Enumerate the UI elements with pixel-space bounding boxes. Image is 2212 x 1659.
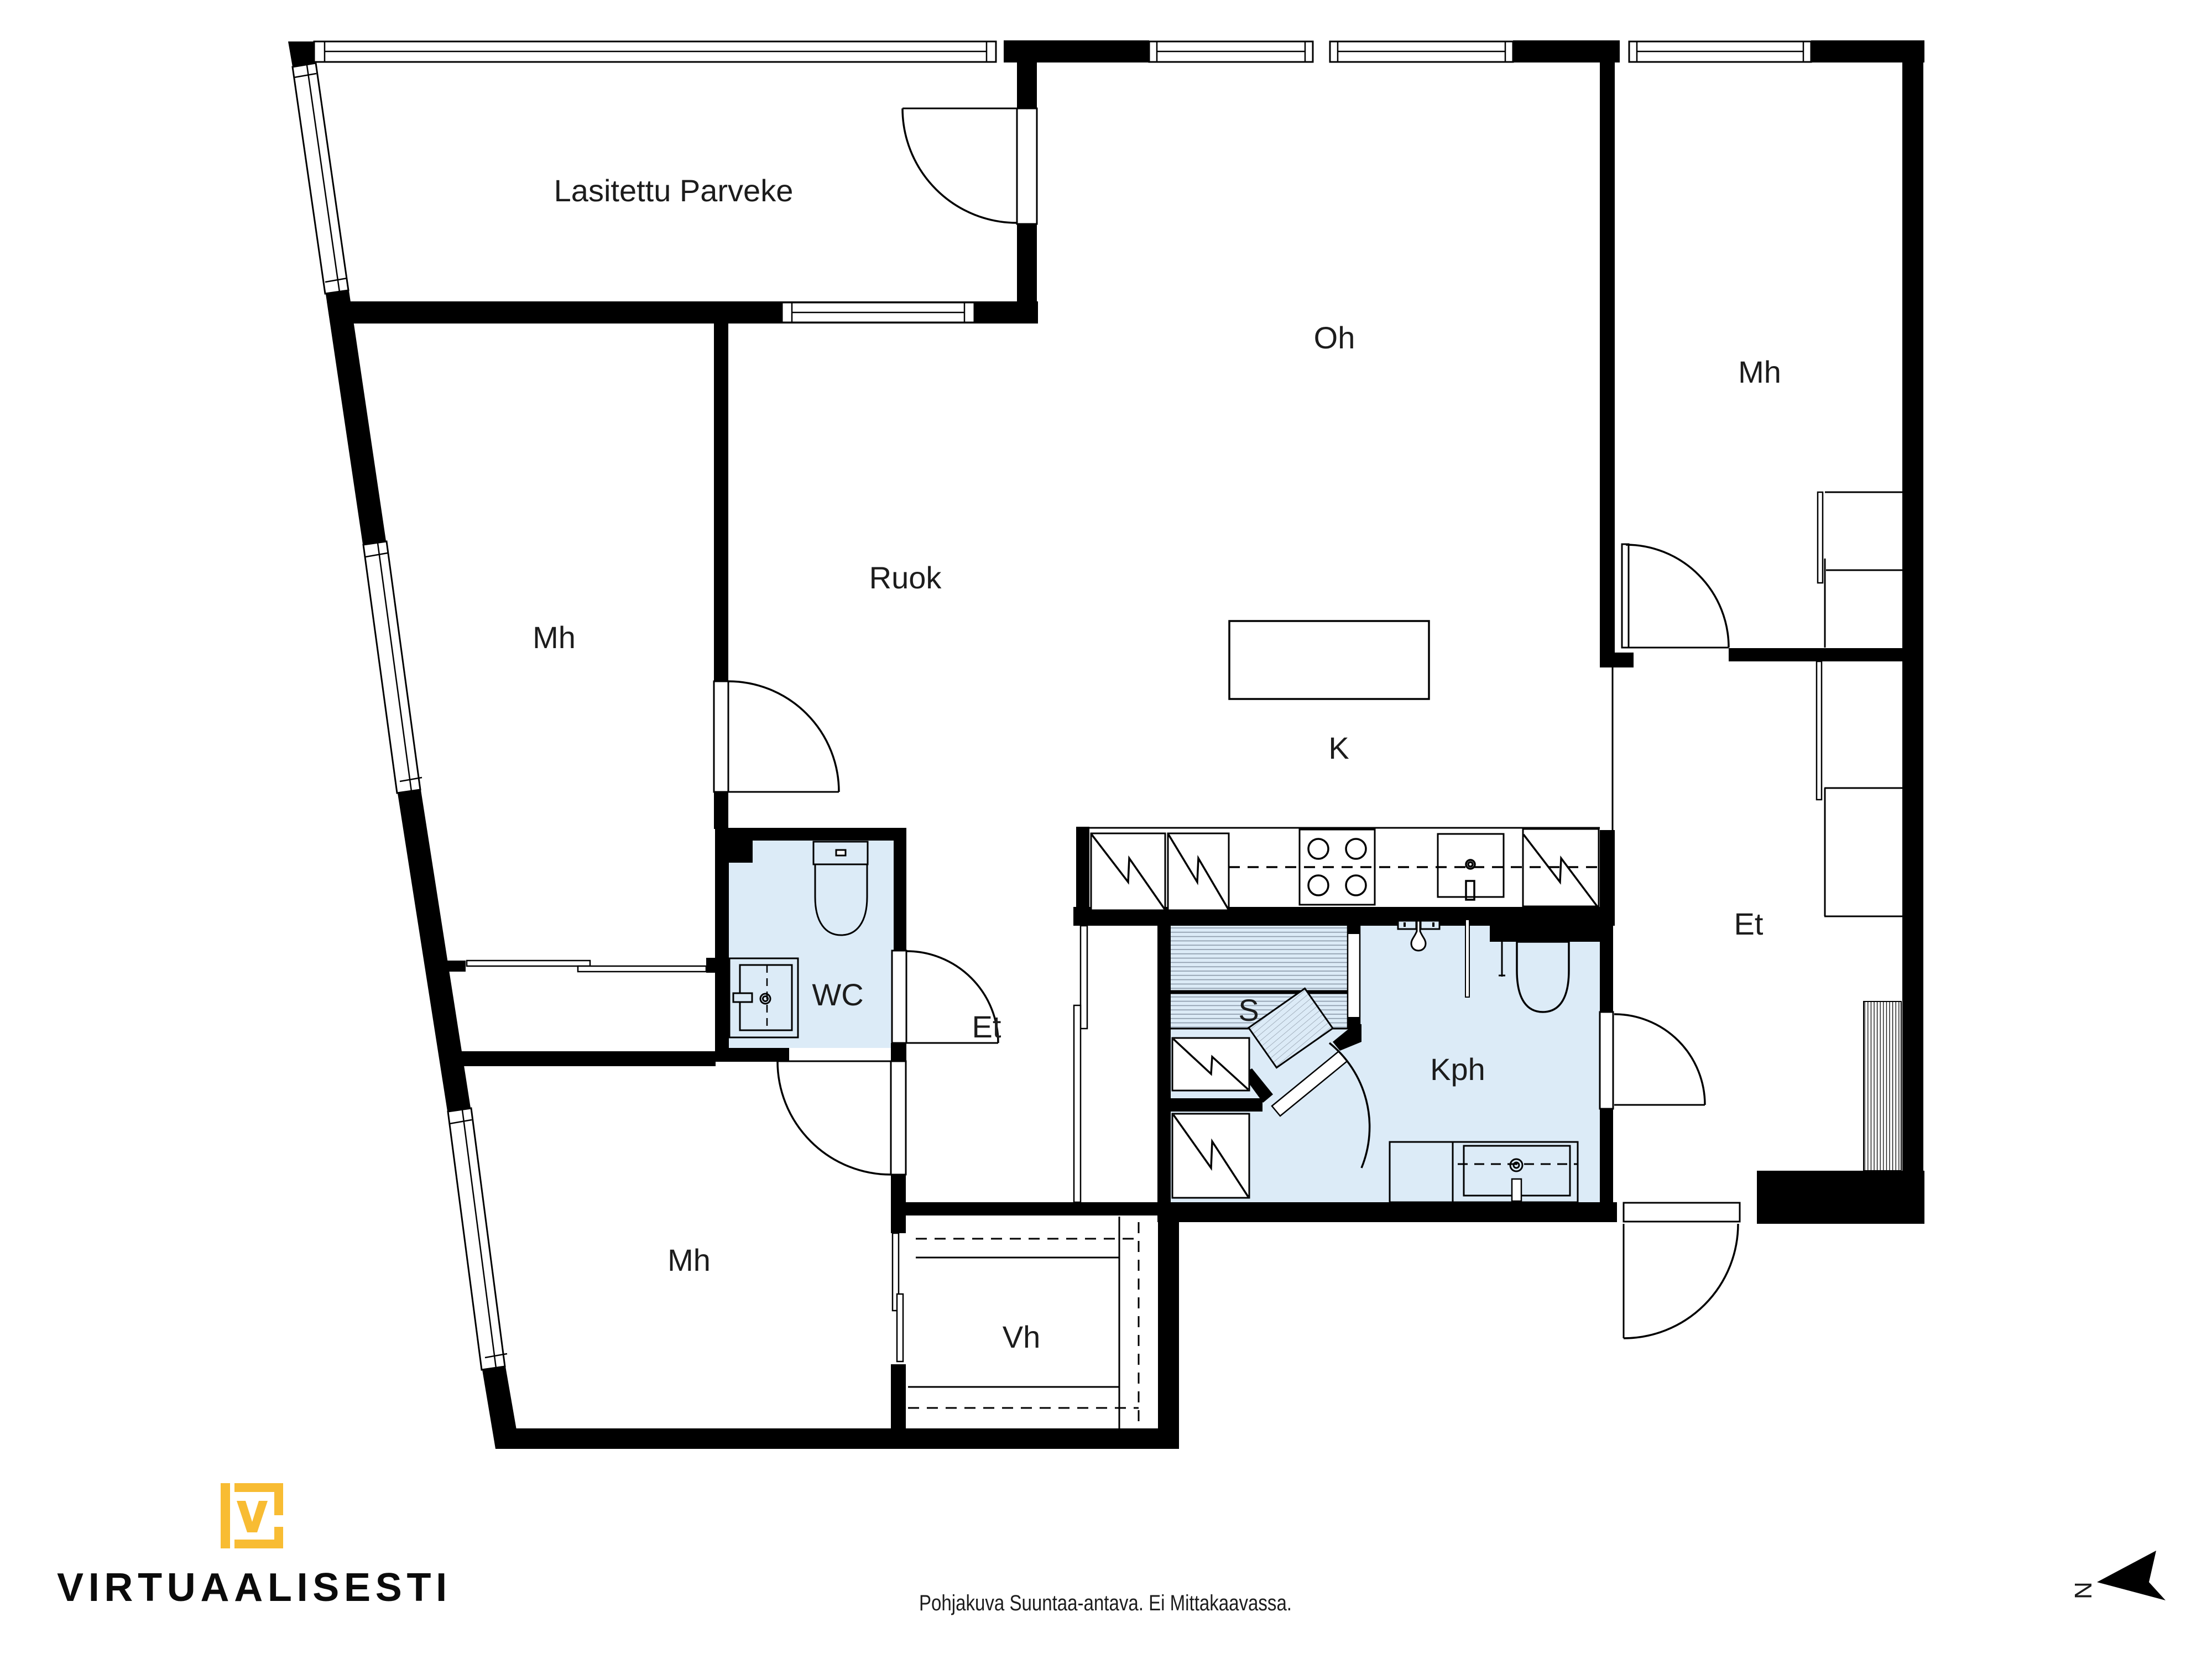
svg-text:Pohjakuva Suuntaa-antava. Ei M: Pohjakuva Suuntaa-antava. Ei Mittakaavas… [919,1591,1292,1615]
svg-text:VIRTUAALISESTI: VIRTUAALISESTI [57,1566,452,1610]
svg-text:Mh: Mh [667,1243,711,1277]
svg-text:S: S [1238,993,1259,1027]
svg-text:Ruok: Ruok [869,560,942,595]
svg-text:Mh: Mh [1738,354,1781,389]
svg-text:Lasitettu Parveke: Lasitettu Parveke [554,173,794,208]
svg-text:Oh: Oh [1314,320,1355,355]
svg-text:Kph: Kph [1430,1052,1485,1087]
svg-text:K: K [1328,731,1349,765]
svg-text:N: N [2069,1582,2096,1599]
svg-text:Et: Et [1734,906,1764,941]
svg-text:Mh: Mh [533,620,576,655]
svg-text:WC: WC [812,977,863,1012]
svg-text:Et: Et [972,1009,1001,1044]
svg-text:Vh: Vh [1003,1319,1041,1354]
